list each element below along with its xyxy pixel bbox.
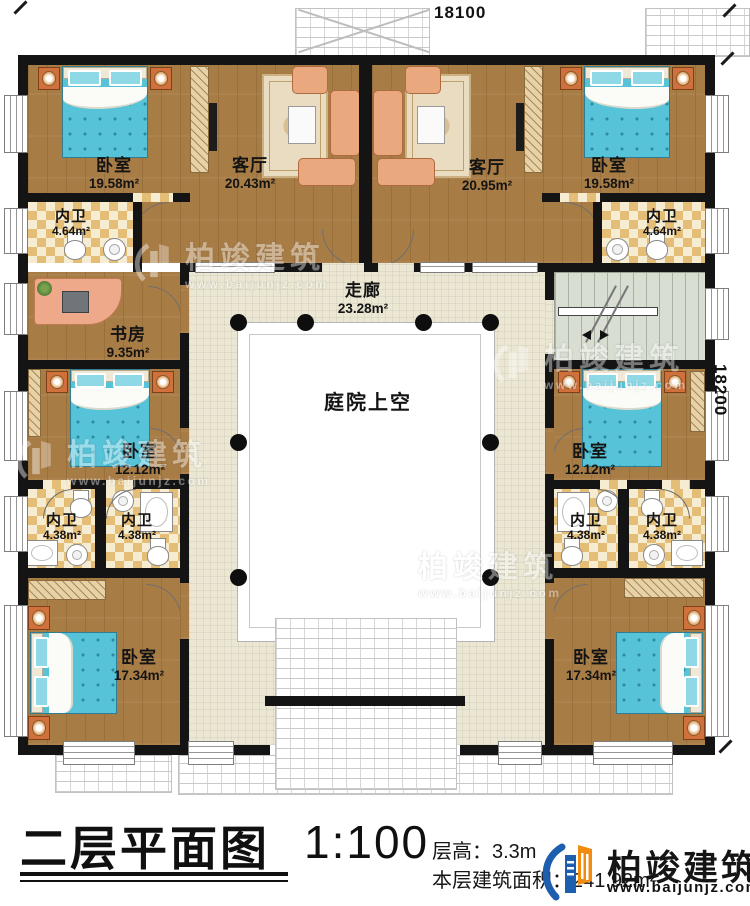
window xyxy=(705,95,729,153)
wall-interior xyxy=(545,360,715,369)
tv-icon xyxy=(516,103,524,151)
dimension-tick xyxy=(13,0,27,14)
brand-logo-icon xyxy=(540,838,604,904)
wall-interior xyxy=(133,193,142,272)
window xyxy=(4,605,28,737)
window xyxy=(420,262,465,273)
room-name: 卧室 xyxy=(64,156,164,176)
tv-icon xyxy=(209,103,217,151)
door-opening xyxy=(106,480,133,489)
nightstand-icon xyxy=(683,716,705,740)
coffee-table-icon xyxy=(417,106,445,144)
pillow-icon xyxy=(75,373,106,388)
dimension-right: 18200 xyxy=(710,364,730,416)
door-opening xyxy=(180,285,189,333)
coffee-table-icon xyxy=(288,106,316,144)
wall-interior xyxy=(600,193,715,202)
sink-icon xyxy=(606,238,629,261)
room-area: 12.12m² xyxy=(90,462,190,478)
brand-url: www.baijunjz.com xyxy=(607,879,750,896)
nightstand-icon xyxy=(28,716,50,740)
pillow-icon xyxy=(631,70,664,86)
door-opening xyxy=(180,583,189,639)
tv-cabinet-icon xyxy=(524,66,543,173)
door-opening xyxy=(133,193,173,202)
room-name: 内卫 xyxy=(21,208,121,225)
room-label-bedroom-top-left: 卧室 19.58m² xyxy=(64,156,164,191)
door-opening xyxy=(43,480,71,489)
window xyxy=(498,741,542,765)
pillow-icon xyxy=(590,70,623,86)
dimension-tick xyxy=(718,739,732,753)
pillow-icon xyxy=(34,676,49,707)
window xyxy=(705,288,729,340)
sink-icon xyxy=(103,238,126,261)
room-name: 卧室 xyxy=(89,648,189,668)
room-label-bath-top-right: 内卫 4.64m² xyxy=(612,208,712,239)
window xyxy=(593,741,673,765)
room-name: 内卫 xyxy=(612,512,712,529)
room-label-bath-left-2: 内卫 4.38m² xyxy=(87,512,187,543)
nightstand-icon xyxy=(28,606,50,630)
armchair-icon xyxy=(405,66,441,94)
room-area: 4.64m² xyxy=(21,225,121,239)
wardrobe-icon xyxy=(624,578,704,598)
wall-interior xyxy=(18,193,133,202)
bed-icon xyxy=(62,66,148,158)
drawing-scale: 1:100 xyxy=(304,815,429,869)
door-opening xyxy=(322,263,364,272)
floor-plan-page: 18100 18200 xyxy=(0,0,750,906)
bed-sheet xyxy=(63,87,147,109)
nightstand-icon xyxy=(683,606,705,630)
room-name: 内卫 xyxy=(87,512,187,529)
pillow-icon xyxy=(587,373,618,388)
room-name: 客厅 xyxy=(437,158,537,178)
roof-canopy-top-right xyxy=(645,8,750,57)
bed-sheet xyxy=(71,388,149,410)
title-underline xyxy=(20,872,288,876)
drawing-title: 二层平面图 xyxy=(20,810,270,879)
window xyxy=(705,605,729,737)
room-label-living-top-right: 客厅 20.95m² xyxy=(437,158,537,193)
room-area: 12.12m² xyxy=(540,462,640,478)
room-label-bedroom-bottom-right: 卧室 17.34m² xyxy=(541,648,641,683)
stair-handrail xyxy=(558,307,658,316)
bed-icon xyxy=(584,66,670,158)
stair-direction-arrow xyxy=(582,330,591,340)
room-area: 20.43m² xyxy=(200,176,300,192)
room-area: 23.28m² xyxy=(313,301,413,317)
room-name: 卧室 xyxy=(540,442,640,462)
sofa-icon xyxy=(298,158,356,186)
nightstand-icon xyxy=(560,67,582,90)
wall-interior xyxy=(542,193,560,202)
column-marker xyxy=(482,434,499,451)
plant-icon xyxy=(37,281,52,296)
room-area: 4.64m² xyxy=(612,225,712,239)
column-marker xyxy=(230,569,247,586)
room-name: 卧室 xyxy=(90,442,190,462)
sofa-icon xyxy=(377,158,435,186)
bed-sheet xyxy=(585,87,669,109)
room-name: 书房 xyxy=(78,325,178,345)
room-area: 4.38m² xyxy=(612,529,712,543)
window xyxy=(4,95,28,153)
bed-sheet xyxy=(660,633,684,713)
wall-porch-parapet xyxy=(265,696,465,706)
window xyxy=(4,283,28,335)
stair-direction-arrow xyxy=(600,330,609,340)
window xyxy=(472,262,538,273)
room-area: 9.35m² xyxy=(78,345,178,361)
wall-interior-center xyxy=(359,55,372,272)
wall-interior xyxy=(18,568,189,578)
wall-interior xyxy=(18,360,189,369)
room-name: 庭院上空 xyxy=(318,392,418,415)
room-name: 内卫 xyxy=(612,208,712,225)
sink-icon xyxy=(66,544,88,566)
room-area: 19.58m² xyxy=(559,176,659,192)
room-label-bath-top-left: 内卫 4.64m² xyxy=(21,208,121,239)
room-area: 20.95m² xyxy=(437,178,537,194)
room-label-study: 书房 9.35m² xyxy=(78,325,178,360)
pillow-icon xyxy=(684,676,699,707)
door-opening xyxy=(545,300,554,354)
window xyxy=(195,262,275,273)
nightstand-icon xyxy=(38,67,60,90)
wardrobe-icon xyxy=(690,371,705,432)
room-label-bedroom-mid-left: 卧室 12.12m² xyxy=(90,442,190,477)
room-name: 卧室 xyxy=(559,156,659,176)
bed-sheet xyxy=(583,388,661,410)
wardrobe-icon xyxy=(28,369,41,437)
pillow-icon xyxy=(113,373,144,388)
nightstand-icon xyxy=(150,67,172,90)
room-label-living-top-left: 客厅 20.43m² xyxy=(200,156,300,191)
sofa-icon xyxy=(373,90,403,156)
room-label-courtyard: 庭院上空 xyxy=(318,392,418,415)
column-marker xyxy=(230,314,247,331)
door-opening xyxy=(545,583,554,639)
column-marker xyxy=(230,434,247,451)
column-marker xyxy=(482,314,499,331)
nightstand-icon xyxy=(152,371,174,393)
room-name: 卧室 xyxy=(541,648,641,668)
door-opening xyxy=(560,193,600,202)
sink-icon xyxy=(643,544,665,566)
pillow-icon xyxy=(34,637,49,668)
room-area: 17.34m² xyxy=(541,668,641,684)
window xyxy=(4,391,28,461)
pillow-icon xyxy=(109,70,142,86)
room-name: 客厅 xyxy=(200,156,300,176)
bed-sheet xyxy=(49,633,73,713)
nightstand-icon xyxy=(664,371,686,393)
wall-interior xyxy=(545,568,715,578)
door-opening xyxy=(378,263,414,272)
wall-interior xyxy=(173,193,190,202)
column-marker xyxy=(297,314,314,331)
room-label-bath-right-2: 内卫 4.38m² xyxy=(612,512,712,543)
pillow-icon xyxy=(625,373,656,388)
room-area: 19.58m² xyxy=(64,176,164,192)
room-label-bedroom-top-right: 卧室 19.58m² xyxy=(559,156,659,191)
room-label-corridor: 走廊 23.28m² xyxy=(313,281,413,316)
pillow-icon xyxy=(68,70,101,86)
column-marker xyxy=(415,314,432,331)
room-label-bedroom-bottom-left: 卧室 17.34m² xyxy=(89,648,189,683)
shower-icon xyxy=(26,540,58,566)
sofa-icon xyxy=(330,90,360,156)
window xyxy=(63,741,135,765)
room-area: 4.38m² xyxy=(87,529,187,543)
door-opening xyxy=(600,480,627,489)
window xyxy=(188,741,234,765)
wardrobe-icon xyxy=(28,580,106,600)
dimension-top: 18100 xyxy=(434,3,486,23)
room-label-bedroom-mid-right: 卧室 12.12m² xyxy=(540,442,640,477)
computer-icon xyxy=(62,291,89,313)
nightstand-icon xyxy=(672,67,694,90)
armchair-icon xyxy=(292,66,328,94)
room-name: 走廊 xyxy=(313,281,413,301)
wall-interior xyxy=(593,193,602,272)
stairs xyxy=(554,272,707,362)
nightstand-icon xyxy=(558,371,580,393)
room-area: 17.34m² xyxy=(89,668,189,684)
shower-icon xyxy=(671,540,703,566)
courtyard-inner-border xyxy=(249,334,481,628)
column-marker xyxy=(482,569,499,586)
pillow-icon xyxy=(684,637,699,668)
nightstand-icon xyxy=(46,371,68,393)
floor-height-note: 层高：3.3m xyxy=(432,835,536,864)
title-underline xyxy=(20,880,288,882)
door-opening xyxy=(662,480,690,489)
